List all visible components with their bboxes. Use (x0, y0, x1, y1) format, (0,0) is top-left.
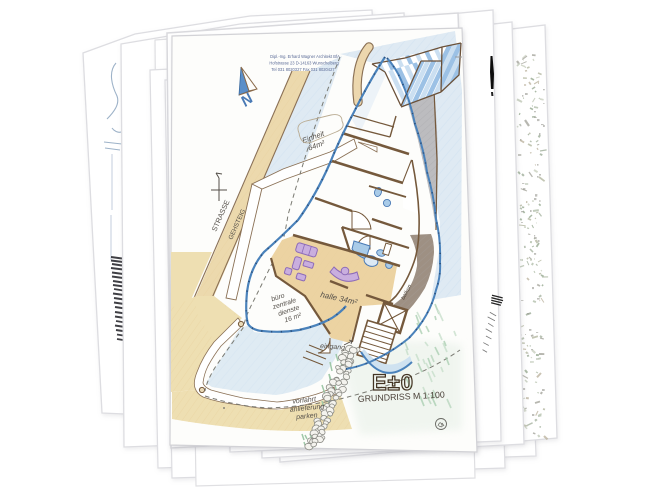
svg-text:Dipl.-Ing. Erhard Wagner Archi: Dipl.-Ing. Erhard Wagner Architekt BfA (270, 54, 340, 59)
svg-text:Tel 031 8020327 Fax 031 802042: Tel 031 8020327 Fax 031 8020427 (271, 67, 335, 72)
svg-text:Hofstrasse 23 D-14163 Wunschel: Hofstrasse 23 D-14163 Wunschelberg (269, 61, 339, 66)
